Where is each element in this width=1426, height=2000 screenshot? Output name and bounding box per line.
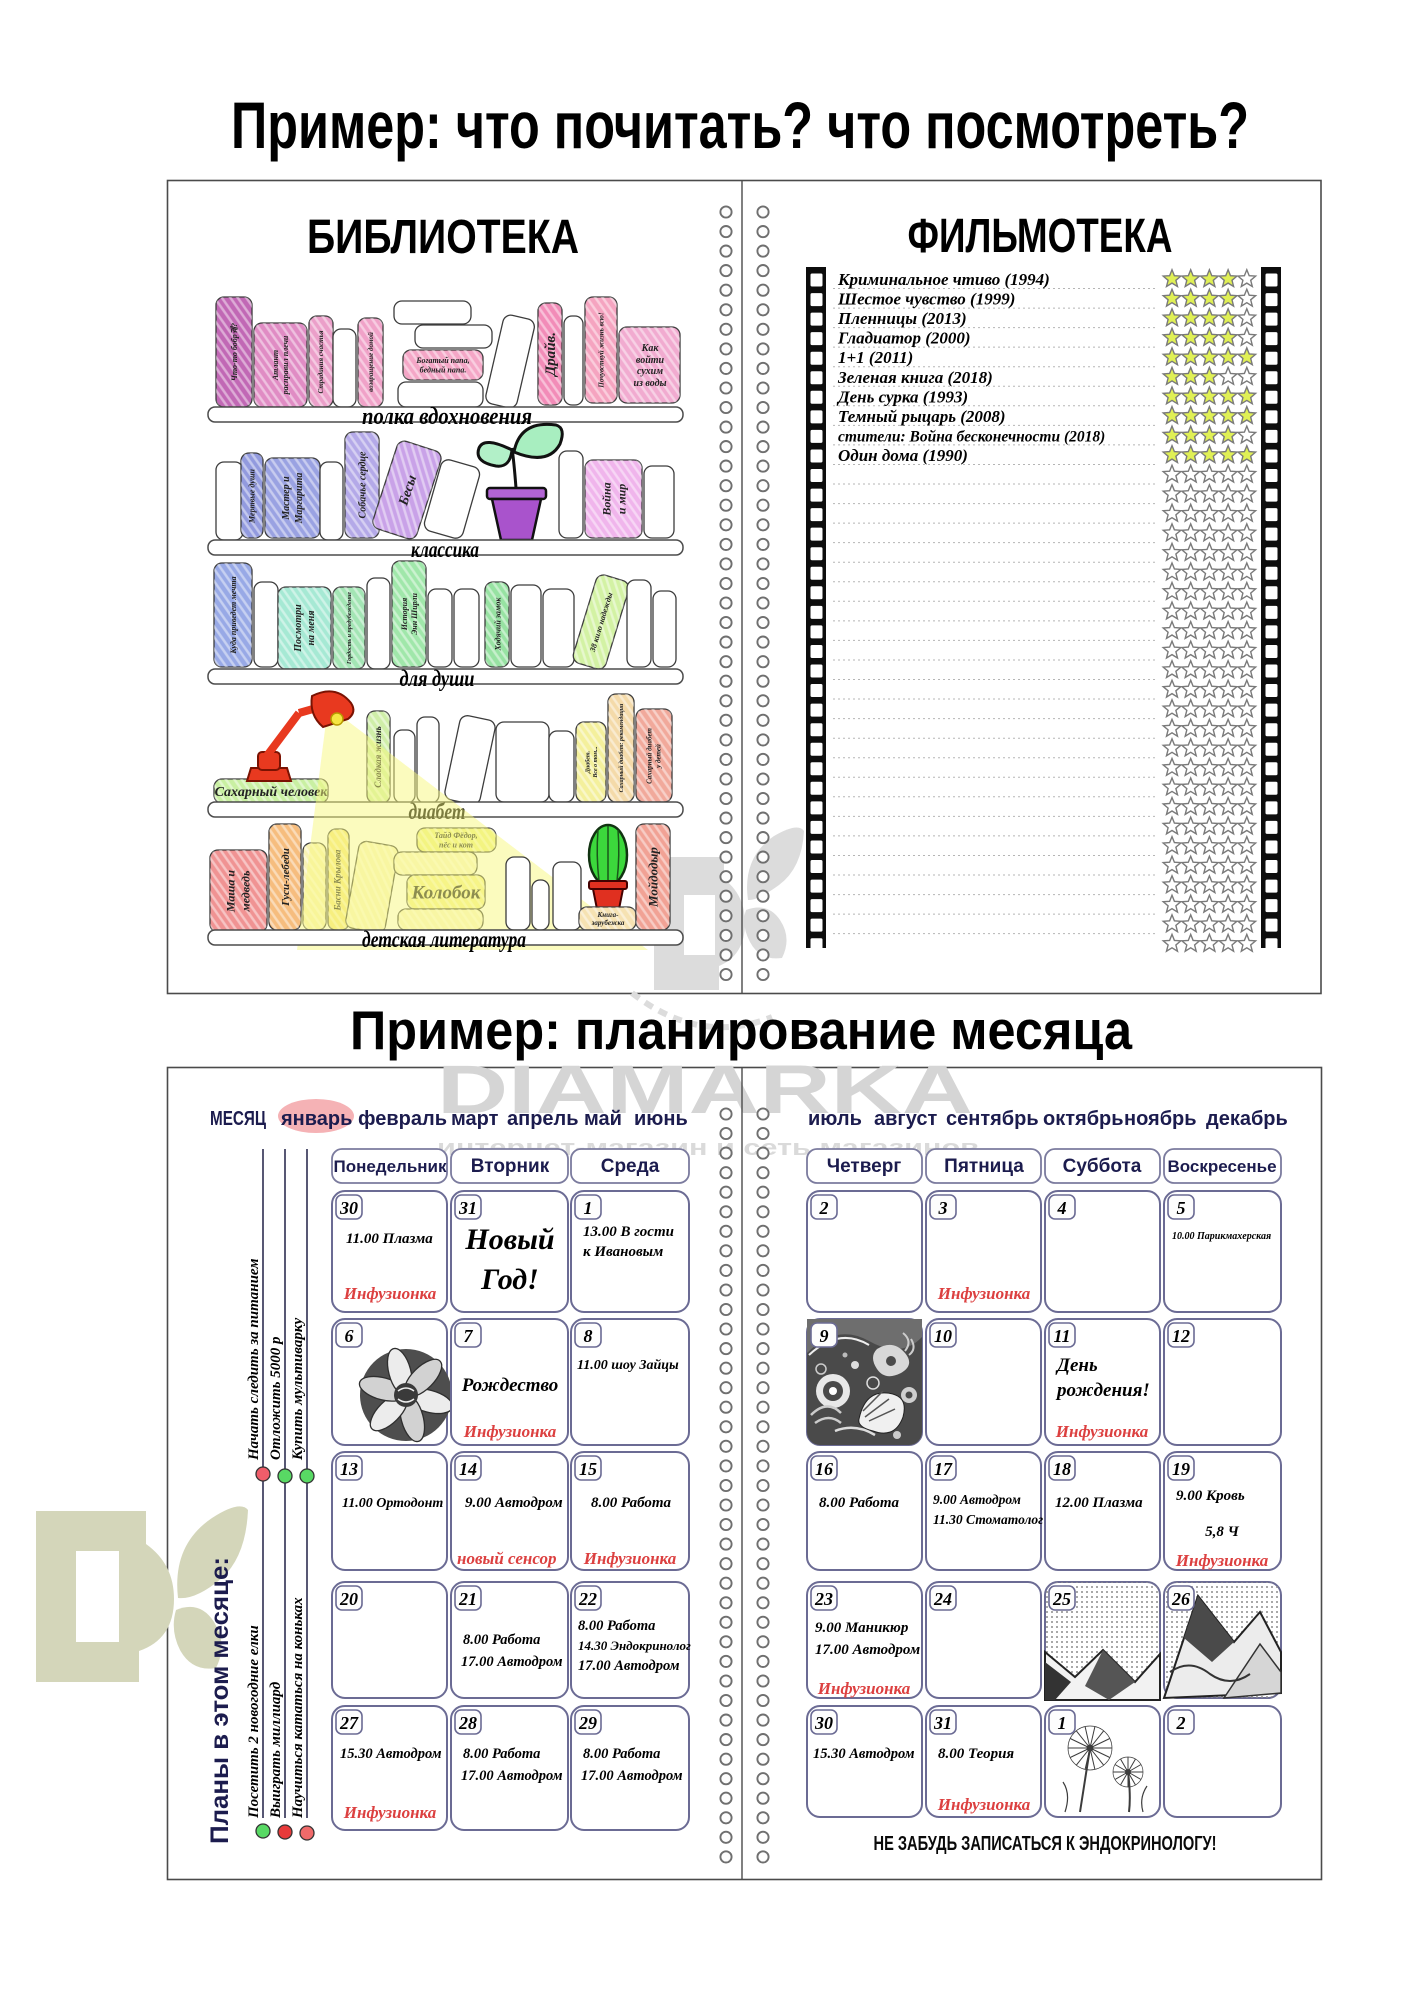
svg-text:9.00 Автодром: 9.00 Автодром [933, 1492, 1021, 1507]
svg-text:20: 20 [339, 1589, 358, 1609]
svg-text:май: май [584, 1108, 622, 1130]
svg-text:полка вдохновения: полка вдохновения [362, 404, 532, 430]
svg-text:15.30 Автодром: 15.30 Автодром [813, 1746, 915, 1762]
svg-text:июнь: июнь [634, 1108, 688, 1130]
svg-text:8.00 Работа: 8.00 Работа [819, 1495, 900, 1511]
svg-text:Суббота: Суббота [1063, 1156, 1142, 1177]
svg-text:15.30 Автодром: 15.30 Автодром [340, 1746, 442, 1762]
svg-text:зарубежка: зарубежка [591, 919, 625, 927]
svg-text:Пятница: Пятница [944, 1156, 1024, 1177]
svg-text:12: 12 [1172, 1326, 1190, 1346]
svg-text:8.00 Работа: 8.00 Работа [463, 1632, 540, 1648]
svg-text:Маша и: Маша и [224, 870, 238, 913]
svg-text:29: 29 [578, 1713, 597, 1733]
svg-text:13.00 В гости: 13.00 В гости [583, 1224, 674, 1240]
svg-text:Отложить 5000 р: Отложить 5000 р [268, 1336, 284, 1460]
svg-text:18: 18 [1053, 1459, 1071, 1479]
svg-text:13: 13 [340, 1459, 358, 1479]
svg-text:апрель: апрель [507, 1108, 579, 1130]
svg-text:Куда приведет мечта: Куда приведет мечта [229, 576, 238, 654]
svg-text:детская литература: детская литература [362, 927, 526, 952]
svg-text:Энн Ширли: Энн Ширли [410, 593, 419, 635]
svg-text:Инфузионка: Инфузионка [463, 1422, 557, 1441]
svg-text:26: 26 [1171, 1589, 1190, 1609]
svg-text:Инфузионка: Инфузионка [583, 1549, 677, 1568]
svg-text:Гордость и предубеждение: Гордость и предубеждение [346, 592, 353, 666]
svg-text:январь: январь [280, 1108, 352, 1130]
svg-text:Мертвые души: Мертвые души [247, 469, 256, 524]
svg-text:История: История [400, 598, 409, 631]
svg-text:17: 17 [934, 1459, 953, 1479]
svg-text:Инфузионка: Инфузионка [1055, 1422, 1149, 1441]
svg-text:Атлант: Атлант [271, 350, 280, 381]
svg-text:2: 2 [819, 1198, 829, 1218]
svg-text:октябрь: октябрь [1043, 1108, 1124, 1130]
svg-text:Научиться кататься на коньках: Научиться кататься на коньках [290, 1597, 306, 1819]
svg-text:Мастер и: Мастер и [281, 476, 292, 521]
svg-text:Сахарный диабет: рекомендации: Сахарный диабет: рекомендации [618, 703, 625, 792]
svg-text:Мойдодыр: Мойдодыр [646, 847, 661, 908]
svg-text:10.00 Парикмахерская: 10.00 Парикмахерская [1172, 1231, 1271, 1242]
svg-text:Посмотри: Посмотри [293, 604, 304, 653]
svg-text:расправил плечи: расправил плечи [281, 335, 290, 395]
svg-text:17.00 Автодром: 17.00 Автодром [461, 1768, 563, 1784]
svg-text:и мир: и мир [615, 484, 629, 515]
svg-text:Инфузионка: Инфузионка [343, 1803, 437, 1822]
svg-text:БИБЛИОТЕКА: БИБЛИОТЕКА [307, 211, 579, 264]
svg-text:Год!: Год! [480, 1263, 539, 1296]
svg-text:к Ивановым: к Ивановым [583, 1244, 663, 1260]
svg-text:23: 23 [814, 1589, 833, 1609]
svg-text:Темный рыцарь (2008): Темный рыцарь (2008) [838, 407, 1006, 426]
svg-text:28: 28 [458, 1713, 477, 1733]
svg-text:Инфузионка: Инфузионка [1175, 1551, 1269, 1570]
svg-text:17.00 Автодром: 17.00 Автодром [578, 1658, 680, 1674]
svg-text:новый сенсор: новый сенсор [457, 1549, 556, 1568]
svg-text:15: 15 [579, 1459, 597, 1479]
svg-text:ноябрь: ноябрь [1124, 1108, 1197, 1130]
svg-text:Ходячий замок: Ходячий замок [493, 597, 502, 652]
svg-text:День: День [1055, 1355, 1098, 1376]
svg-text:Гуси-лебеди: Гуси-лебеди [280, 848, 292, 907]
svg-text:Вторник: Вторник [471, 1156, 550, 1177]
svg-text:март: март [451, 1108, 499, 1130]
svg-text:8: 8 [584, 1326, 593, 1346]
svg-text:Пленницы (2013): Пленницы (2013) [837, 309, 967, 328]
svg-text:Один дома (1990): Один дома (1990) [838, 446, 968, 465]
svg-text:12.00 Плазма: 12.00 Плазма [1055, 1495, 1143, 1511]
svg-text:11.30 Стоматолог: 11.30 Стоматолог [933, 1512, 1043, 1527]
svg-text:Страдания счастья: Страдания счастья [317, 330, 325, 393]
svg-text:Почувствуй жизнь всю!: Почувствуй жизнь всю! [597, 312, 605, 388]
svg-text:9: 9 [820, 1326, 829, 1346]
svg-text:14: 14 [459, 1459, 477, 1479]
svg-text:3: 3 [938, 1198, 948, 1218]
svg-text:Четверг: Четверг [827, 1156, 902, 1177]
svg-text:9.00 Маникюр: 9.00 Маникюр [815, 1620, 909, 1636]
svg-text:на меня: на меня [306, 610, 317, 645]
svg-text:сентябрь: сентябрь [946, 1108, 1039, 1130]
svg-text:Сахарный диабет: Сахарный диабет [646, 728, 654, 784]
svg-text:30: 30 [339, 1198, 358, 1218]
svg-text:17.00 Автодром: 17.00 Автодром [815, 1642, 920, 1658]
svg-text:медведь: медведь [239, 870, 253, 912]
svg-text:Инфузионка: Инфузионка [937, 1795, 1031, 1814]
svg-text:МЕСЯЦ: МЕСЯЦ [210, 1108, 266, 1130]
svg-text:31: 31 [458, 1198, 477, 1218]
svg-text:возвращение домой: возвращение домой [367, 332, 375, 392]
svg-text:День сурка (1993): День сурка (1993) [836, 387, 968, 406]
svg-text:Как: Как [641, 343, 660, 354]
svg-text:сухим: сухим [637, 366, 663, 377]
svg-text:ФИЛЬМОТЕКА: ФИЛЬМОТЕКА [908, 210, 1173, 263]
svg-text:8.00 Работа: 8.00 Работа [463, 1746, 540, 1762]
svg-text:войти: войти [636, 355, 665, 366]
svg-text:2: 2 [1176, 1713, 1186, 1733]
svg-text:август: август [874, 1108, 937, 1130]
svg-text:Новый: Новый [464, 1223, 554, 1256]
svg-text:8.00 Работа: 8.00 Работа [583, 1746, 660, 1762]
svg-text:1: 1 [1058, 1713, 1067, 1733]
svg-text:19: 19 [1172, 1459, 1190, 1479]
svg-text:27: 27 [339, 1713, 359, 1733]
svg-text:Драйв.: Драйв. [543, 332, 559, 378]
svg-text:Криминальное чтиво (1994): Криминальное чтиво (1994) [837, 270, 1050, 289]
svg-text:Что-то бобр궤?: Что-то бобр궤? [230, 323, 239, 381]
svg-text:5: 5 [1177, 1198, 1186, 1218]
svg-text:Диабет.: Диабет. [584, 750, 591, 774]
svg-text:Все о том...: Все о том... [593, 746, 599, 779]
svg-text:Рождество: Рождество [461, 1375, 559, 1396]
svg-text:6: 6 [345, 1326, 354, 1346]
svg-text:Инфузионка: Инфузионка [937, 1284, 1031, 1303]
svg-text:8.00 Работа: 8.00 Работа [591, 1495, 672, 1511]
svg-text:Понедельник: Понедельник [333, 1157, 447, 1176]
svg-text:Воскресенье: Воскресенье [1167, 1157, 1276, 1176]
svg-text:Собачье сердце: Собачье сердце [358, 451, 369, 518]
svg-text:у детей: у детей [654, 744, 662, 769]
svg-text:рождения!: рождения! [1055, 1380, 1150, 1401]
svg-text:4: 4 [1057, 1198, 1067, 1218]
svg-text:16: 16 [815, 1459, 833, 1479]
svg-text:декабрь: декабрь [1206, 1108, 1288, 1130]
svg-text:Инфузионка: Инфузионка [343, 1284, 437, 1303]
svg-text:21: 21 [458, 1589, 477, 1609]
svg-text:Выиграть миллиард: Выиграть миллиард [268, 1681, 284, 1819]
svg-text:Планы в этом месяце:: Планы в этом месяце: [206, 1557, 234, 1844]
svg-text:11.00 Плазма: 11.00 Плазма [346, 1231, 433, 1247]
svg-text:Зеленая книга (2018): Зеленая книга (2018) [837, 368, 993, 387]
svg-text:классика: классика [411, 537, 479, 562]
svg-text:17.00 Автодром: 17.00 Автодром [461, 1654, 563, 1670]
svg-text:1: 1 [584, 1198, 593, 1218]
svg-text:Инфузионка: Инфузионка [817, 1679, 911, 1698]
svg-text:Сахарный человек: Сахарный человек [215, 785, 329, 800]
svg-text:9.00 Кровь: 9.00 Кровь [1176, 1488, 1245, 1504]
svg-text:25: 25 [1052, 1589, 1071, 1609]
svg-text:24: 24 [933, 1589, 952, 1609]
svg-text:10: 10 [934, 1326, 952, 1346]
svg-text:Пример: что почитать? что посм: Пример: что почитать? что посмотреть? [231, 88, 1249, 162]
svg-text:стители: Война бесконечности (: стители: Война бесконечности (2018) [838, 428, 1105, 445]
svg-text:17.00 Автодром: 17.00 Автодром [581, 1768, 683, 1784]
svg-text:11.00 Ортодонт: 11.00 Ортодонт [342, 1496, 443, 1511]
svg-text:Маргарита: Маргарита [294, 473, 305, 525]
svg-text:31: 31 [933, 1713, 952, 1733]
svg-text:Гладиатор (2000): Гладиатор (2000) [837, 329, 971, 348]
svg-text:30: 30 [814, 1713, 833, 1733]
svg-text:9.00 Автодром: 9.00 Автодром [465, 1495, 563, 1511]
svg-text:Среда: Среда [601, 1156, 660, 1177]
svg-text:Шестое чувство (1999): Шестое чувство (1999) [837, 290, 1015, 309]
svg-text:1+1 (2011): 1+1 (2011) [838, 348, 913, 367]
svg-text:Книга-: Книга- [597, 911, 620, 919]
svg-text:Богатый папа,: Богатый папа, [415, 356, 469, 365]
svg-text:Купить мультиварку: Купить мультиварку [290, 1318, 306, 1461]
svg-text:для души: для души [400, 666, 475, 691]
svg-text:14.30 Эндокринолог: 14.30 Эндокринолог [578, 1638, 691, 1653]
svg-text:НЕ ЗАБУДЬ ЗАПИСАТЬСЯ К ЭНДОКРИ: НЕ ЗАБУДЬ ЗАПИСАТЬСЯ К ЭНДОКРИНОЛОГУ! [874, 1833, 1217, 1855]
svg-text:Посетить 2 новогодние елки: Посетить 2 новогодние елки [246, 1625, 262, 1819]
svg-text:11: 11 [1053, 1326, 1070, 1346]
svg-text:11.00 шоу Зайцы: 11.00 шоу Зайцы [577, 1358, 679, 1373]
svg-text:8.00 Теория: 8.00 Теория [938, 1746, 1014, 1762]
svg-text:5,8 Ч: 5,8 Ч [1205, 1524, 1240, 1540]
svg-text:из воды: из воды [633, 378, 666, 389]
svg-text:февраль: февраль [358, 1108, 447, 1130]
svg-text:8.00 Работа: 8.00 Работа [578, 1618, 655, 1634]
svg-text:бедный папа.: бедный папа. [420, 365, 467, 374]
svg-text:7: 7 [464, 1326, 474, 1346]
svg-text:22: 22 [578, 1589, 597, 1609]
svg-text:Война: Война [600, 482, 614, 516]
svg-text:Начать следить за питанием: Начать следить за питанием [246, 1259, 262, 1462]
svg-text:июль: июль [808, 1108, 862, 1130]
